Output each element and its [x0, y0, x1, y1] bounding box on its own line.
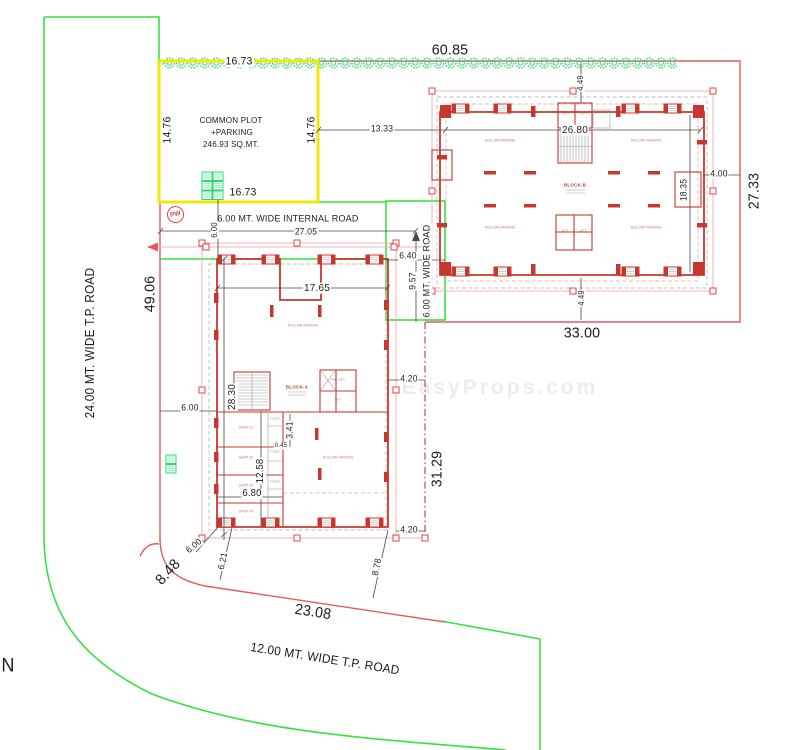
common-plot-line3: 246.93 SQ.MT.: [203, 140, 259, 149]
dim-28-30: 28.30: [227, 383, 238, 411]
dim-18-35: 18.35: [680, 178, 689, 202]
plot-boundary-green: [44, 17, 540, 750]
site-plan: EasyProps.com: [0, 0, 800, 750]
dashed-envelopes: [209, 97, 707, 530]
shop-2-label: SHOP 02: [239, 456, 253, 459]
common-plot-line2: +PARKING: [211, 128, 253, 137]
dim-6-00-west: 6.00: [180, 404, 199, 413]
dim-27-33: 27.33: [747, 173, 762, 210]
parking-label-b4: HOLLOW PARKING: [631, 226, 661, 229]
parking-columns-a: [270, 305, 322, 480]
dim-60-85: 60.85: [432, 43, 469, 58]
dim-14-76-right: 14.76: [307, 116, 318, 143]
dim-3-41: 3.41: [286, 420, 295, 439]
dim-14-76-left: 14.76: [163, 116, 174, 143]
fire-lift-label-a: FIRE LIFT: [331, 379, 345, 382]
dim-4-49-top: 4.49: [577, 74, 585, 91]
dim-6-00-internal: 6.00: [211, 221, 219, 238]
dim-6-40: 6.40: [398, 252, 417, 261]
dim-16-73-top: 16.73: [224, 57, 253, 68]
lift-label-b3: LIFT: [562, 230, 568, 233]
grip-handles: [199, 88, 716, 541]
dim-33-00: 33.00: [564, 326, 601, 341]
parking-label-b3: HOLLOW PARKING: [485, 226, 515, 229]
lift-label-a: LIFT: [335, 399, 341, 402]
dim-4-20-low: 4.20: [399, 526, 418, 535]
dim-4-00: 4.00: [709, 170, 728, 179]
lift-label-b2: LIFT: [581, 113, 587, 116]
parking-label-a2: HOLLOW PARKING: [323, 456, 353, 459]
parking-columns-b: [484, 171, 660, 208]
dim-27-05: 27.05: [294, 228, 318, 237]
lift-label-b4: LIFT: [580, 230, 586, 233]
toilet-label-1: TOILET: [270, 418, 280, 421]
internal-road-label: 6.00 MT. WIDE INTERNAL ROAD: [217, 214, 358, 224]
road-west-label: 24.00 MT. WIDE T.P. ROAD: [84, 268, 97, 419]
north-indicator: N: [1, 657, 14, 676]
common-plot-line1: COMMON PLOT: [199, 116, 262, 125]
parking-label-b1: HOLLOW PARKING: [485, 139, 515, 142]
lift-label-b1: LIFT: [563, 113, 569, 116]
dim-0-45: 0.45: [274, 443, 289, 450]
road-east-label: 6.00 MT. WIDE ROAD: [422, 224, 432, 319]
dim-9-57: 9.57: [409, 271, 418, 290]
parking-label-b2: HOLLOW PARKING: [631, 139, 661, 142]
shop-4-label: SHOP 04: [239, 510, 253, 513]
dim-31-29: 31.29: [430, 451, 445, 488]
shop-3-label: SHOP 03: [239, 484, 253, 487]
dim-16-73-bottom: 16.73: [228, 188, 257, 199]
dim-6-80: 6.80: [241, 489, 262, 499]
dim-49-06: 49.06: [143, 276, 158, 313]
block-a-label: BLOCK-A: [286, 386, 308, 391]
dim-12-58: 12.58: [256, 458, 266, 485]
dim-4-20-mid: 4.20: [399, 375, 418, 384]
dim-17-65: 17.65: [303, 283, 331, 294]
toilet-label-2: TOILET: [270, 451, 280, 454]
dim-26-80: 26.80: [561, 125, 589, 136]
parking-label-a1: HOLLOW PARKING: [288, 324, 318, 327]
shop-1-label: SHOP 01: [239, 426, 253, 429]
toilet-label-3: TOILET: [270, 481, 280, 484]
dim-4-49-bottom: 4.49: [578, 289, 586, 306]
dim-13-33: 13.33: [370, 125, 394, 134]
block-b-label: BLOCK-B: [564, 184, 586, 189]
